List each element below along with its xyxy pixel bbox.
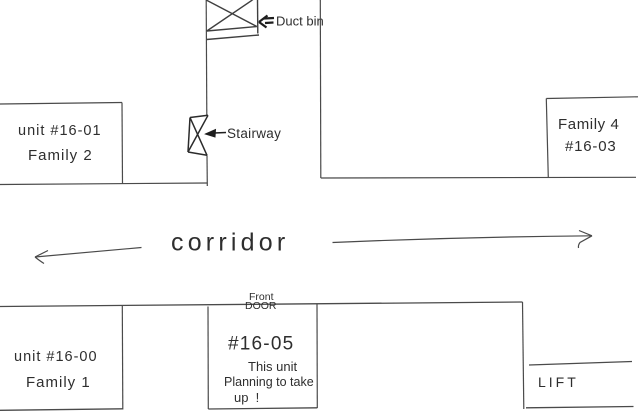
svg-text:Duct bin: Duct bin — [276, 14, 324, 29]
svg-text:Planning to take: Planning to take — [224, 375, 314, 389]
svg-text:Family 2: Family 2 — [28, 147, 93, 164]
svg-text:#16-05: #16-05 — [228, 334, 294, 355]
svg-text:LIFT: LIFT — [538, 374, 579, 390]
svg-text:unit #16-01: unit #16-01 — [18, 123, 102, 139]
svg-text:#16-03: #16-03 — [565, 138, 617, 155]
svg-text:DOOR: DOOR — [245, 300, 277, 312]
svg-text:Family 4: Family 4 — [558, 116, 619, 133]
svg-text:corridor: corridor — [171, 229, 289, 257]
svg-text:up !: up ! — [234, 390, 259, 405]
svg-text:Stairway: Stairway — [227, 126, 281, 141]
svg-text:Family 1: Family 1 — [26, 374, 91, 391]
svg-text:unit #16-00: unit #16-00 — [14, 349, 98, 365]
svg-text:This unit: This unit — [248, 359, 298, 374]
